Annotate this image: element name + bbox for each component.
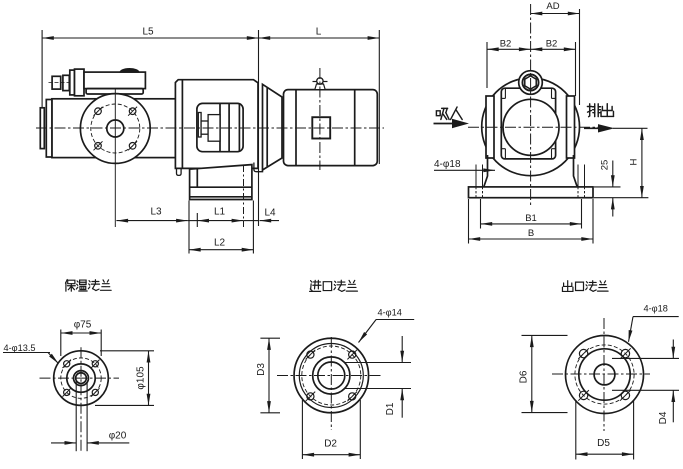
svg-text:L5: L5 — [142, 27, 154, 38]
svg-text:B: B — [528, 228, 534, 239]
svg-text:D2: D2 — [324, 439, 337, 450]
svg-text:φ20: φ20 — [109, 431, 127, 442]
svg-text:L4: L4 — [264, 208, 276, 219]
svg-text:B2: B2 — [500, 39, 512, 50]
svg-text:B2: B2 — [546, 39, 558, 50]
svg-text:4-φ18: 4-φ18 — [644, 303, 668, 313]
svg-text:25: 25 — [600, 160, 611, 171]
svg-text:4-φ14: 4-φ14 — [378, 308, 402, 318]
svg-text:D5: D5 — [597, 438, 610, 449]
svg-text:φ105: φ105 — [136, 366, 147, 390]
svg-text:L2: L2 — [214, 238, 226, 249]
svg-text:4-φ13.5: 4-φ13.5 — [4, 343, 36, 353]
svg-text:AD: AD — [546, 1, 559, 12]
svg-text:D1: D1 — [385, 402, 396, 415]
svg-text:L3: L3 — [150, 207, 162, 218]
svg-text:D3: D3 — [256, 363, 267, 376]
svg-text:L: L — [316, 27, 322, 38]
svg-text:H: H — [629, 158, 640, 165]
svg-text:D4: D4 — [658, 411, 669, 424]
svg-text:4-φ18: 4-φ18 — [434, 159, 461, 170]
svg-text:L1: L1 — [214, 207, 226, 218]
svg-text:φ75: φ75 — [74, 320, 92, 331]
svg-text:D6: D6 — [519, 370, 530, 383]
svg-text:B1: B1 — [525, 213, 537, 224]
